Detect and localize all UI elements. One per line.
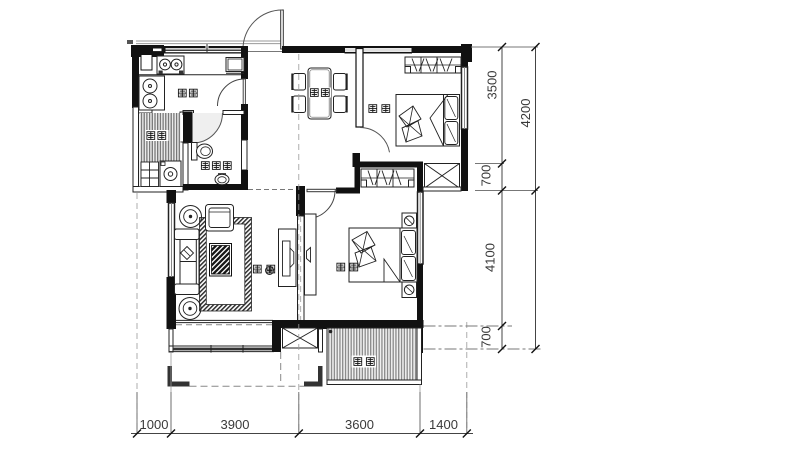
svg-text:4200: 4200 xyxy=(518,99,533,128)
svg-text:1400: 1400 xyxy=(429,417,458,432)
svg-text:4100: 4100 xyxy=(483,243,498,272)
svg-text:700: 700 xyxy=(479,326,494,348)
svg-text:700: 700 xyxy=(479,165,494,187)
svg-text:1000: 1000 xyxy=(140,417,169,432)
svg-text:3600: 3600 xyxy=(345,417,374,432)
svg-text:3900: 3900 xyxy=(221,417,250,432)
svg-text:3500: 3500 xyxy=(485,71,500,100)
